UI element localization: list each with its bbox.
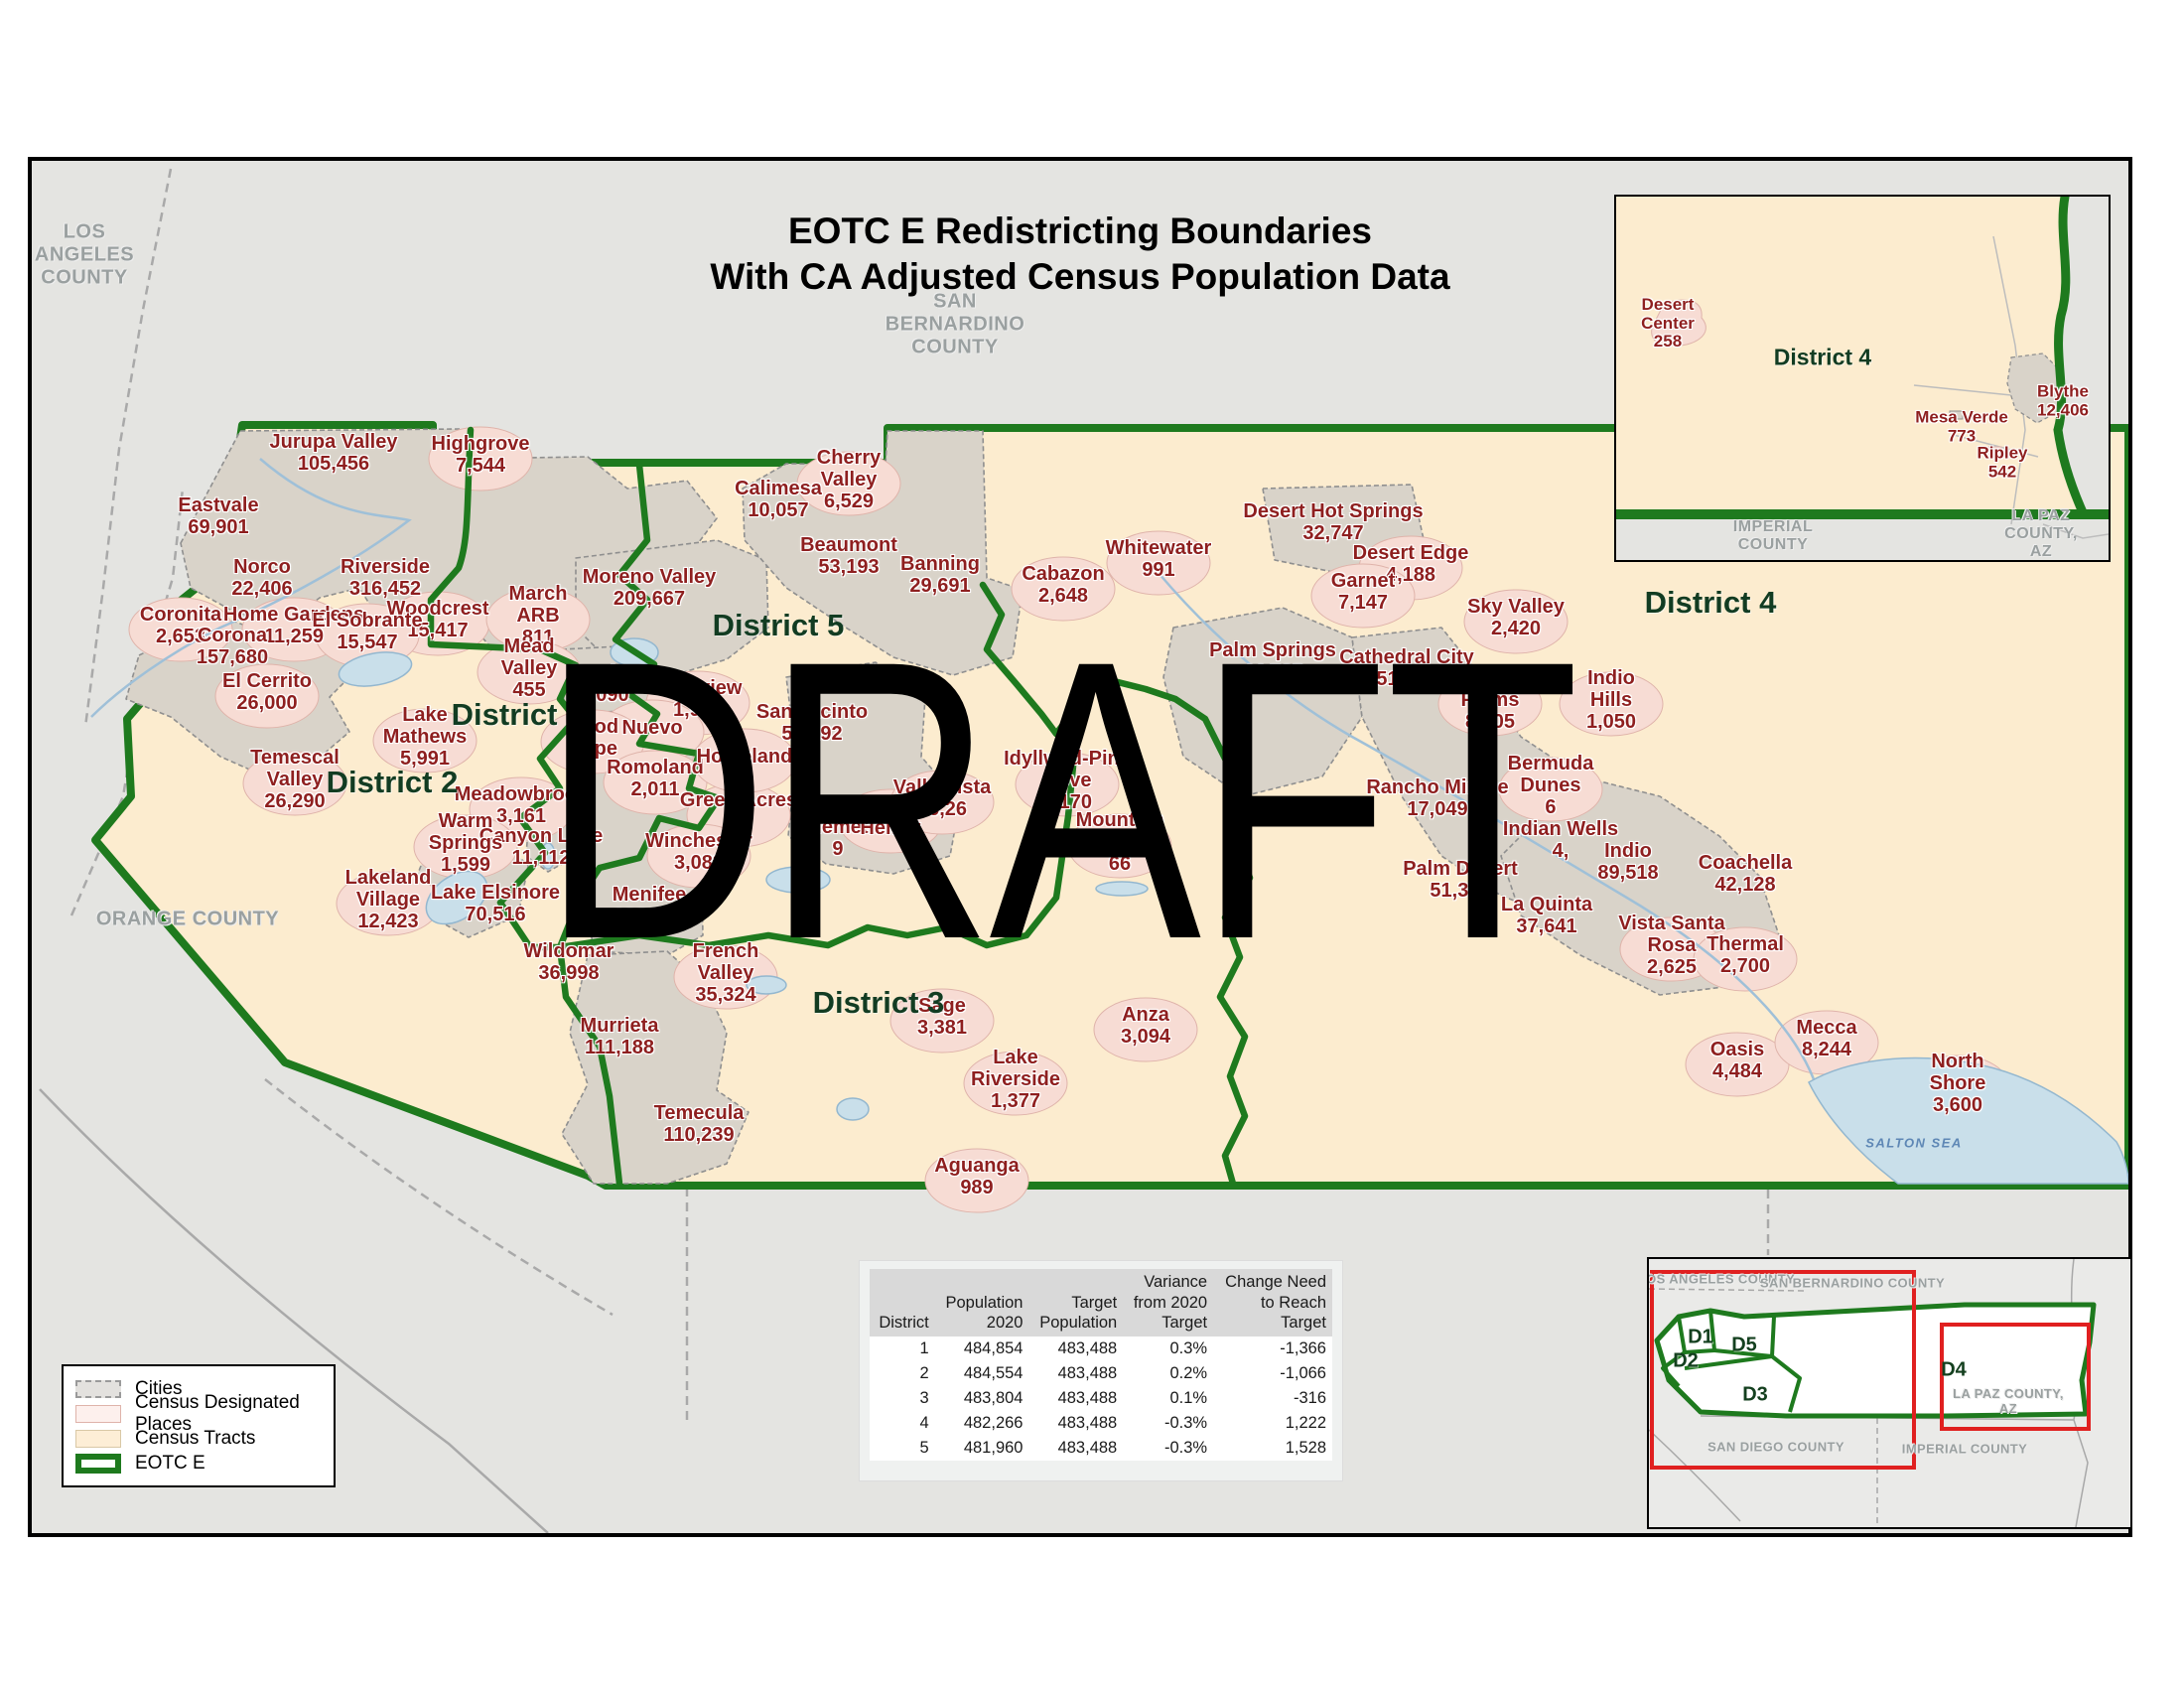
table-cell: 483,488 — [1028, 1411, 1123, 1436]
place-label: Temecula 110,239 — [654, 1102, 745, 1146]
place-label: Mecca 8,244 — [1796, 1017, 1856, 1060]
place-label: Blythe 12,406 — [2037, 382, 2089, 419]
place-label: Corona 157,680 — [197, 625, 268, 668]
table-cell: 2 — [870, 1361, 935, 1386]
place-label: Mesa Verde 773 — [1915, 408, 2008, 445]
place-label: Oasis 4,484 — [1710, 1039, 1764, 1082]
col-change-need: Change Need to Reach Target — [1213, 1269, 1332, 1336]
table-row: 1484,854483,4880.3%-1,366 — [870, 1336, 1332, 1361]
legend: Cities Census Designated Places Census T… — [62, 1364, 336, 1487]
legend-item-cdp: Census Designated Places — [75, 1401, 322, 1426]
place-label: El Sobrante 15,547 — [312, 610, 422, 653]
place-label: Eastvale 69,901 — [178, 494, 258, 538]
county-label: IMPERIAL COUNTY — [1733, 518, 1813, 554]
salton-sea-label: SALTON SEA — [1865, 1136, 1963, 1151]
place-label: El Cerrito 26,000 — [222, 670, 312, 714]
place-label: Riverside 316,452 — [341, 556, 430, 600]
county-label: IMPERIAL COUNTY — [1902, 1442, 2027, 1457]
table-cell: 483,488 — [1028, 1361, 1123, 1386]
place-label: Lakeland Village 12,423 — [345, 867, 432, 932]
place-label: Aguanga 989 — [934, 1155, 1020, 1198]
table-cell: 0.2% — [1123, 1361, 1213, 1386]
table-cell: 1,528 — [1213, 1436, 1332, 1461]
place-label: Desert Center 258 — [1641, 296, 1695, 352]
place-label: Cherry Valley 6,529 — [817, 447, 881, 512]
map-frame: EOTC E Redistricting Boundaries With CA … — [28, 157, 2132, 1537]
county-label: SAN BERNARDINO COUNTY — [886, 291, 1025, 359]
table-cell: 481,960 — [935, 1436, 1029, 1461]
table-row: 2484,554483,4880.2%-1,066 — [870, 1361, 1332, 1386]
table-row: 3483,804483,4880.1%-316 — [870, 1386, 1332, 1411]
table-cell: 0.3% — [1123, 1336, 1213, 1361]
district-label: D1 — [1688, 1327, 1713, 1349]
district-label: D4 — [1941, 1359, 1967, 1382]
district4-inset-map: Desert Center 258Mesa Verde 773Blythe 12… — [1614, 195, 2111, 562]
eotc-swatch — [75, 1454, 121, 1474]
district4-inset-geometry — [1616, 197, 2109, 560]
col-population-2020: Population 2020 — [935, 1269, 1029, 1336]
table-body: 1484,854483,4880.3%-1,3662484,554483,488… — [870, 1336, 1332, 1461]
district-label: District 4 — [1645, 585, 1777, 621]
district-label: District 2 — [327, 765, 459, 800]
col-variance: Variance from 2020 Target — [1123, 1269, 1213, 1336]
table-cell: 483,488 — [1028, 1436, 1123, 1461]
table-cell: 482,266 — [935, 1411, 1029, 1436]
table-cell: 3 — [870, 1386, 935, 1411]
place-label: Jurupa Valley 105,456 — [270, 431, 398, 475]
place-label: Warm Springs 1,599 — [429, 810, 502, 876]
population-table: District Population 2020 Target Populati… — [860, 1261, 1342, 1480]
county-label: LA PAZ COUNTY, AZ — [2004, 507, 2078, 561]
district-label: D3 — [1742, 1384, 1768, 1407]
table-cell: -1,066 — [1213, 1361, 1332, 1386]
tracts-swatch — [75, 1430, 121, 1448]
district-label: District 4 — [1774, 345, 1871, 371]
main-map: EOTC E Redistricting Boundaries With CA … — [32, 161, 2128, 1533]
place-label: Coachella 42,128 — [1699, 852, 1792, 896]
col-district: District — [870, 1269, 935, 1336]
table-cell: 0.1% — [1123, 1386, 1213, 1411]
district-label: D5 — [1731, 1335, 1757, 1357]
table-row: 4482,266483,488-0.3%1,222 — [870, 1411, 1332, 1436]
cities-swatch — [75, 1380, 121, 1398]
table-cell: 1,222 — [1213, 1411, 1332, 1436]
table-cell: 4 — [870, 1411, 935, 1436]
place-label: Desert Hot Springs 32,747 — [1243, 500, 1423, 544]
place-label: Indio 89,518 — [1597, 840, 1658, 884]
table-cell: 484,554 — [935, 1361, 1029, 1386]
table-cell: 5 — [870, 1436, 935, 1461]
county-label: LA PAZ COUNTY, AZ — [1948, 1386, 2070, 1416]
district-population-table: District Population 2020 Target Populati… — [870, 1269, 1332, 1461]
table-cell: 1 — [870, 1336, 935, 1361]
county-label: SAN DIEGO COUNTY — [1707, 1440, 1844, 1455]
place-label: Whitewater 991 — [1106, 537, 1212, 581]
table-cell: -0.3% — [1123, 1436, 1213, 1461]
legend-label: EOTC E — [135, 1453, 205, 1475]
place-label: Lake Riverside 1,377 — [971, 1047, 1060, 1112]
district-label: D2 — [1673, 1350, 1699, 1373]
place-label: Indio Hills 1,050 — [1586, 667, 1636, 733]
table-cell: 484,854 — [935, 1336, 1029, 1361]
table-cell: 483,488 — [1028, 1386, 1123, 1411]
map-document: EOTC E Redistricting Boundaries With CA … — [0, 0, 2184, 1688]
legend-item-eotc: EOTC E — [75, 1451, 322, 1476]
place-label: North Shore 3,600 — [1930, 1051, 1986, 1116]
place-label: Calimesa 10,057 — [735, 478, 822, 521]
table-cell: -0.3% — [1123, 1411, 1213, 1436]
place-label: Ripley 542 — [1977, 444, 2027, 481]
draft-watermark: DRAFT — [540, 632, 1575, 969]
table-header: District Population 2020 Target Populati… — [870, 1269, 1332, 1336]
overview-inset-map: D1D2D5D3D4LOS ANGELES COUNTYSAN BERNARDI… — [1647, 1257, 2132, 1529]
table-cell: -316 — [1213, 1386, 1332, 1411]
table-row: 5481,960483,488-0.3%1,528 — [870, 1436, 1332, 1461]
county-label: SAN BERNARDINO COUNTY — [1760, 1276, 1945, 1291]
place-label: Highgrove 7,544 — [432, 433, 530, 477]
table-cell: 483,804 — [935, 1386, 1029, 1411]
county-label: ORANGE COUNTY — [96, 909, 279, 931]
table-cell: -1,366 — [1213, 1336, 1332, 1361]
place-label: Thermal 2,700 — [1706, 933, 1784, 977]
col-target-population: Target Population — [1028, 1269, 1123, 1336]
place-label: Norco 22,406 — [231, 556, 292, 600]
legend-label: Census Tracts — [135, 1428, 255, 1450]
table-cell: 483,488 — [1028, 1336, 1123, 1361]
cdp-swatch — [75, 1405, 121, 1423]
place-label: Beaumont 53,193 — [800, 534, 897, 578]
